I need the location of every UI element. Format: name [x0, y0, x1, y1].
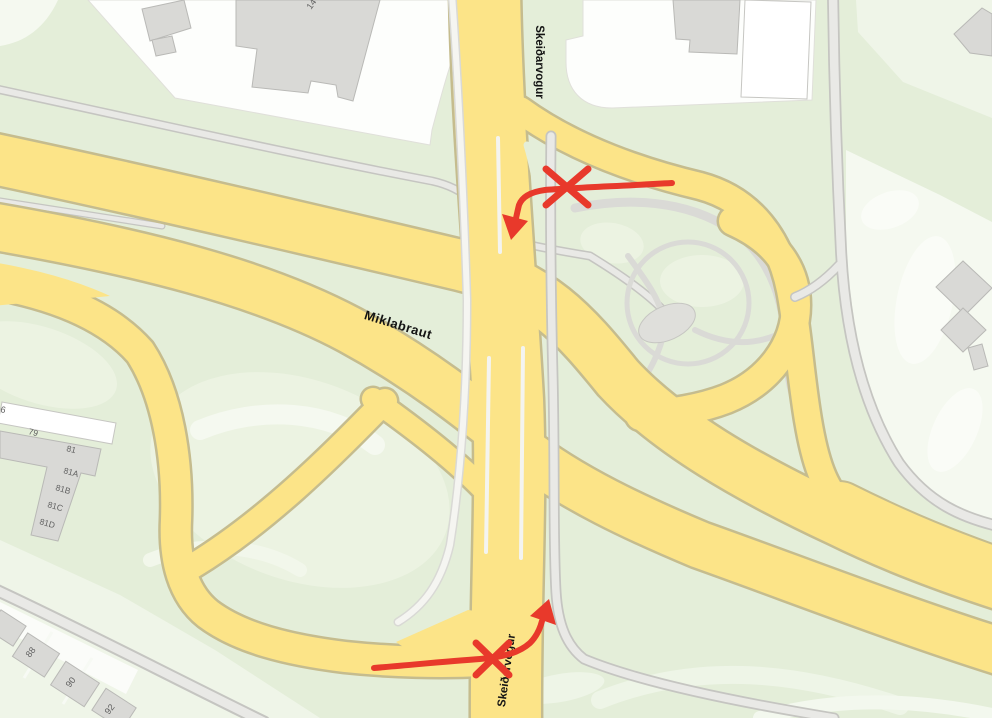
building-north-white	[741, 0, 811, 99]
lane-line	[498, 138, 500, 252]
map-canvas[interactable]: Miklabraut Skeiðarvogur Skeiðarvogur 14 …	[0, 0, 992, 718]
map-viewport[interactable]: Miklabraut Skeiðarvogur Skeiðarvogur 14 …	[0, 0, 992, 718]
lane-line	[521, 348, 523, 558]
road-label-skeidarvogur-north: Skeiðarvogur	[533, 25, 545, 99]
building-annex	[152, 36, 176, 56]
